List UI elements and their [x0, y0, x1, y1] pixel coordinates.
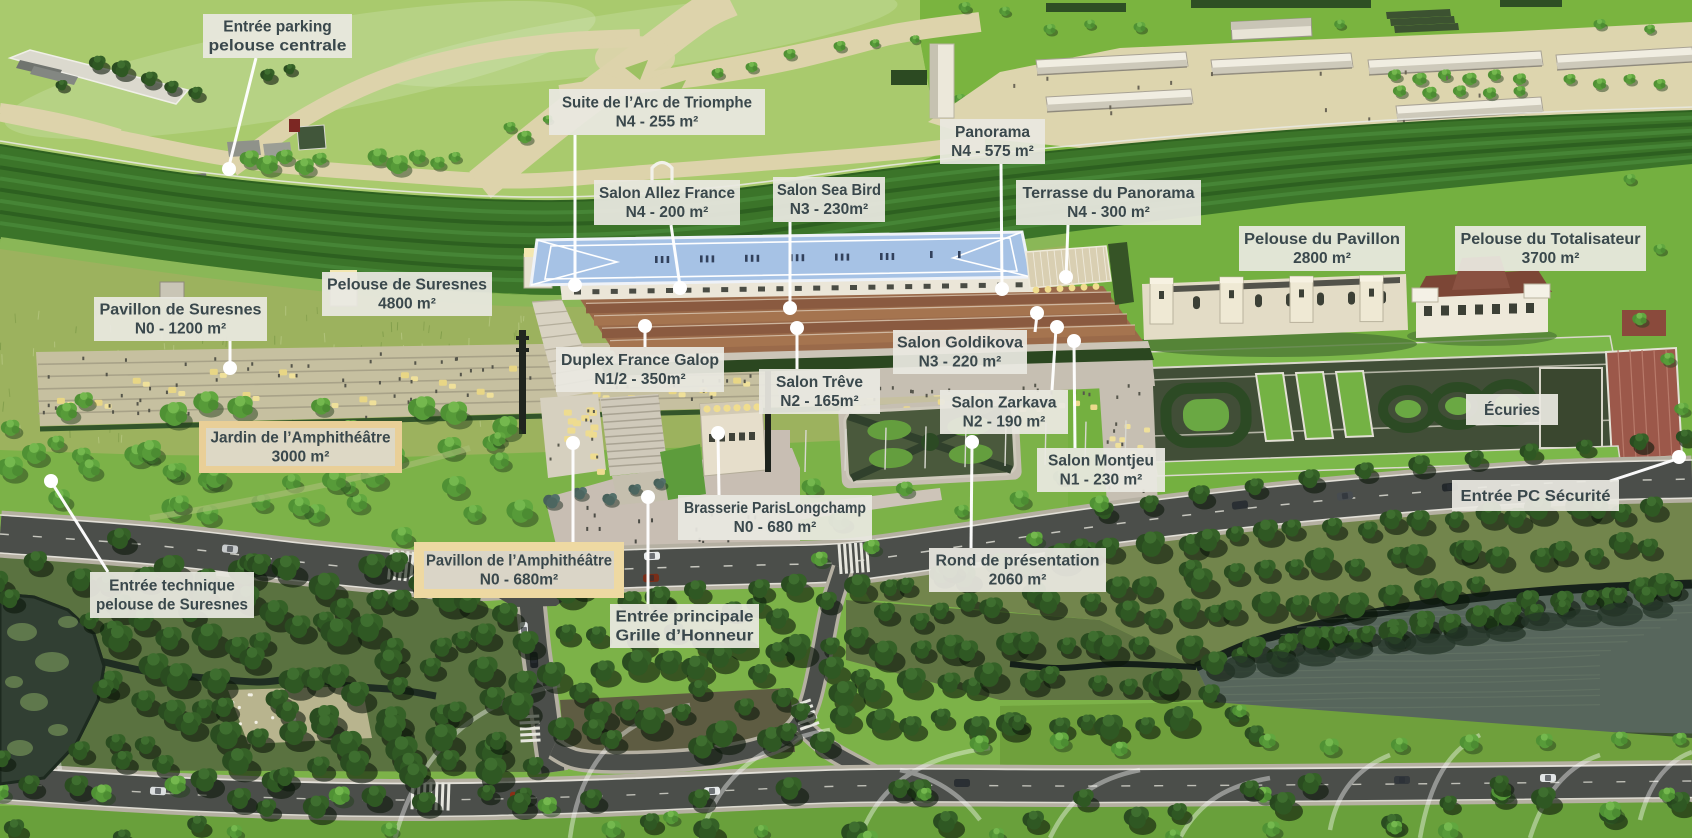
svg-text:N4 - 575 m²: N4 - 575 m² [951, 143, 1034, 160]
svg-text:2060 m²: 2060 m² [989, 572, 1047, 589]
svg-text:Salon Trêve: Salon Trêve [776, 374, 863, 391]
svg-text:Salon Montjeu: Salon Montjeu [1048, 453, 1154, 470]
svg-text:Duplex France Galop: Duplex France Galop [561, 352, 719, 369]
svg-text:N1/2 - 350m²: N1/2 - 350m² [594, 371, 685, 388]
svg-text:Entrée technique: Entrée technique [109, 578, 235, 595]
svg-text:2800 m²: 2800 m² [1293, 250, 1351, 267]
svg-text:N0 - 1200 m²: N0 - 1200 m² [135, 321, 226, 338]
svg-text:Terrasse du Panorama: Terrasse du Panorama [1023, 185, 1195, 202]
svg-text:N3 - 230m²: N3 - 230m² [790, 201, 868, 218]
svg-text:Pavillon de l’Amphithéâtre: Pavillon de l’Amphithéâtre [426, 553, 612, 570]
svg-text:Rond de présentation: Rond de présentation [936, 553, 1100, 570]
svg-text:Entrée parking: Entrée parking [223, 19, 332, 36]
svg-text:pelouse centrale: pelouse centrale [209, 38, 347, 55]
svg-text:Brasserie ParisLongchamp: Brasserie ParisLongchamp [684, 500, 866, 517]
svg-text:N0 - 680 m²: N0 - 680 m² [734, 519, 817, 536]
svg-text:N4 - 300 m²: N4 - 300 m² [1067, 204, 1150, 221]
svg-text:Salon Zarkava: Salon Zarkava [951, 395, 1056, 412]
svg-text:Entrée PC Sécurité: Entrée PC Sécurité [1461, 488, 1611, 505]
svg-text:N0 - 680m²: N0 - 680m² [480, 572, 558, 589]
svg-text:Suite de l’Arc de Triomphe: Suite de l’Arc de Triomphe [562, 95, 752, 112]
svg-text:N2 - 165m²: N2 - 165m² [780, 393, 858, 410]
svg-text:Pelouse du Totalisateur: Pelouse du Totalisateur [1461, 231, 1641, 248]
svg-text:N1 - 230 m²: N1 - 230 m² [1060, 472, 1143, 489]
svg-text:N3 - 220 m²: N3 - 220 m² [919, 354, 1002, 371]
svg-text:Pelouse du Pavillon: Pelouse du Pavillon [1244, 231, 1400, 248]
svg-text:Pavillon de Suresnes: Pavillon de Suresnes [100, 302, 262, 319]
svg-text:4800 m²: 4800 m² [378, 296, 436, 313]
svg-text:Grille d’Honneur: Grille d’Honneur [616, 628, 754, 645]
svg-text:Salon Sea Bird: Salon Sea Bird [777, 182, 881, 199]
svg-text:N4 - 200 m²: N4 - 200 m² [626, 204, 709, 221]
svg-text:Jardin de l’Amphithéâtre: Jardin de l’Amphithéâtre [211, 430, 391, 447]
svg-text:pelouse de Suresnes: pelouse de Suresnes [96, 597, 248, 614]
svg-text:Salon Allez France: Salon Allez France [599, 185, 735, 202]
svg-text:N4 - 255 m²: N4 - 255 m² [616, 114, 699, 131]
svg-text:3000 m²: 3000 m² [272, 449, 330, 466]
svg-text:Entrée principale: Entrée principale [616, 609, 754, 626]
svg-text:N2 - 190 m²: N2 - 190 m² [963, 414, 1046, 431]
svg-text:Panorama: Panorama [955, 124, 1030, 141]
svg-text:Écuries: Écuries [1484, 402, 1540, 419]
svg-text:Pelouse de Suresnes: Pelouse de Suresnes [327, 277, 487, 294]
svg-text:Salon Goldikova: Salon Goldikova [897, 335, 1023, 352]
svg-text:3700 m²: 3700 m² [1522, 250, 1580, 267]
